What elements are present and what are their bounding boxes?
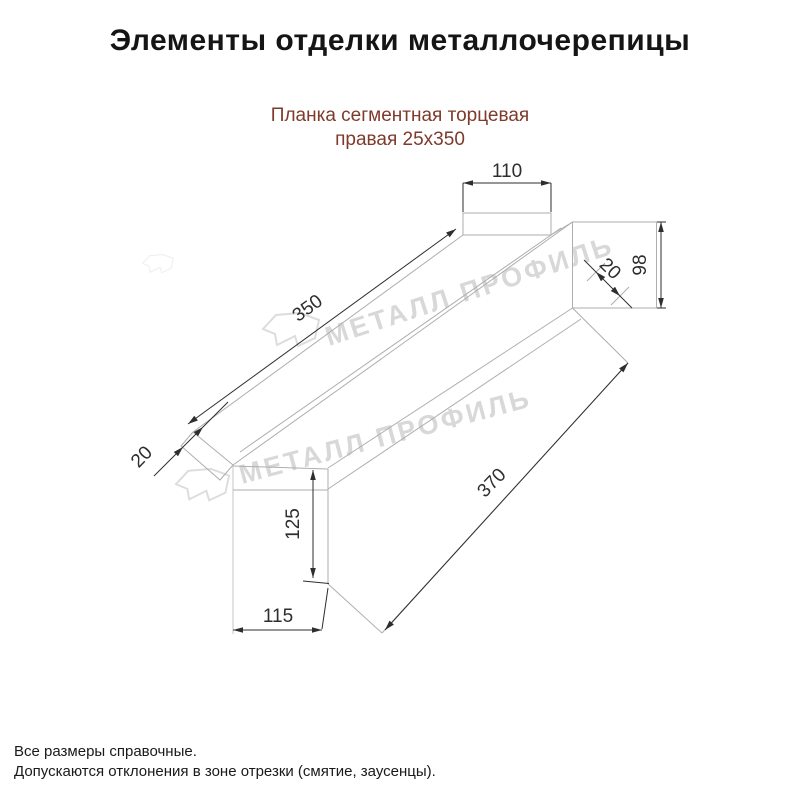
dim-lower-flange-length: 370 [473, 464, 510, 501]
product-drawing-page: Элементы отделки металлочерепицы Планка … [0, 0, 800, 800]
footer-notes: Все размеры справочные. Допускаются откл… [14, 742, 436, 782]
footer-note-2: Допускаются отклонения в зоне отрезки (с… [14, 762, 436, 782]
watermark-upper: МЕТАЛЛ ПРОФИЛЬ [263, 230, 617, 352]
watermark-ghost-logo-icon [143, 255, 174, 273]
brand-logo-icon [176, 469, 229, 500]
technical-drawing: МЕТАЛЛ ПРОФИЛЬ МЕТАЛЛ ПРОФИЛЬ [0, 0, 800, 800]
dim-left-fold: 20 [127, 442, 157, 472]
dim-upper-flange-length: 350 [289, 291, 327, 327]
watermark-text: МЕТАЛЛ ПРОФИЛЬ [322, 230, 618, 352]
dimension-lines: 110 350 20 98 20 [127, 161, 666, 633]
footer-note-1: Все размеры справочные. [14, 742, 436, 762]
dim-left-end-height: 125 [283, 508, 304, 540]
dim-right-end-height: 98 [630, 254, 651, 275]
dim-left-end-width: 115 [263, 606, 293, 627]
dim-top-flange-width: 110 [492, 161, 522, 182]
